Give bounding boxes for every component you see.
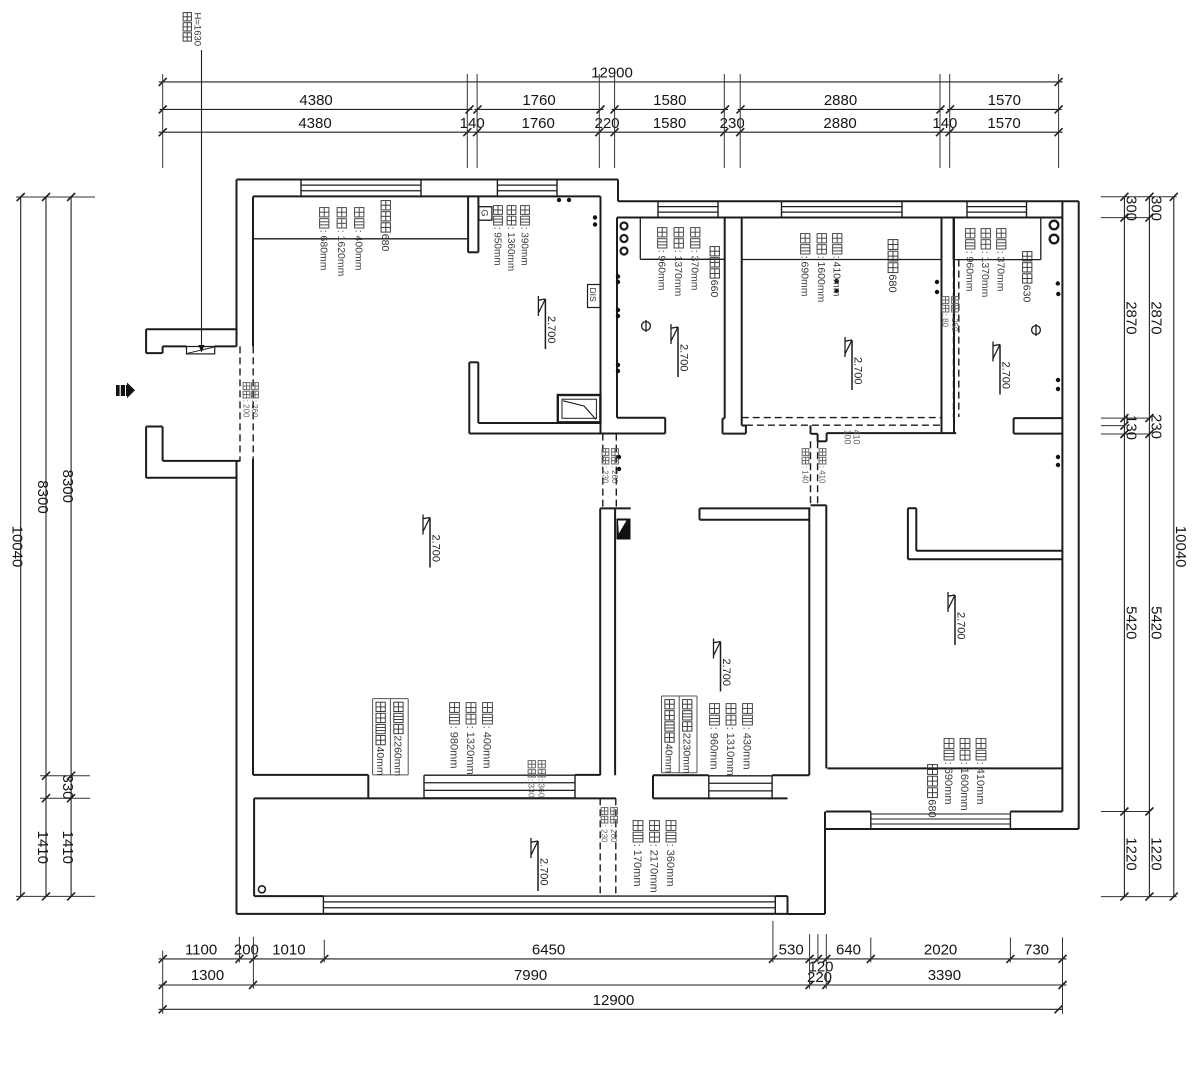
svg-text:2870: 2870 bbox=[1123, 301, 1140, 334]
svg-text:2.700: 2.700 bbox=[538, 858, 550, 886]
svg-text:: 1310mm: : 1310mm bbox=[724, 727, 736, 776]
svg-text:2.700: 2.700 bbox=[430, 535, 442, 563]
svg-text:3390: 3390 bbox=[928, 967, 961, 984]
svg-text:12900: 12900 bbox=[593, 992, 635, 1009]
svg-text:2.700: 2.700 bbox=[852, 357, 864, 385]
svg-text:1760: 1760 bbox=[522, 92, 555, 109]
svg-text:: 960mm: : 960mm bbox=[655, 250, 667, 291]
svg-text:: 1370mm: : 1370mm bbox=[672, 250, 684, 297]
svg-text:2.700: 2.700 bbox=[720, 659, 732, 687]
svg-text:: 980mm: : 980mm bbox=[447, 726, 459, 769]
svg-text:680: 680 bbox=[925, 799, 937, 817]
svg-text:40mm: 40mm bbox=[663, 744, 675, 773]
svg-text:5420: 5420 bbox=[1148, 606, 1165, 639]
svg-text:680: 680 bbox=[379, 234, 391, 252]
svg-text:: 410: : 410 bbox=[818, 466, 827, 484]
svg-text:: 1600mm: : 1600mm bbox=[815, 256, 827, 303]
svg-text:2880: 2880 bbox=[824, 92, 857, 109]
svg-text:220: 220 bbox=[807, 969, 832, 986]
svg-text:1300: 1300 bbox=[191, 967, 224, 984]
svg-text:: 410mm: : 410mm bbox=[830, 256, 842, 297]
svg-text:: 690mm: : 690mm bbox=[798, 256, 810, 297]
svg-text:100: 100 bbox=[843, 430, 853, 445]
svg-text:1570: 1570 bbox=[988, 92, 1021, 109]
svg-text:1580: 1580 bbox=[653, 115, 686, 132]
svg-text:410: 410 bbox=[852, 430, 862, 445]
svg-text:: 680mm: : 680mm bbox=[317, 230, 329, 271]
svg-text:1100: 1100 bbox=[185, 942, 217, 959]
svg-text:: 410mm: : 410mm bbox=[974, 762, 986, 805]
svg-text:7990: 7990 bbox=[514, 967, 547, 984]
svg-text:: 400mm: : 400mm bbox=[480, 726, 492, 769]
svg-text:8300: 8300 bbox=[59, 470, 76, 503]
svg-text:1570: 1570 bbox=[987, 115, 1020, 132]
svg-text:: 400mm: : 400mm bbox=[352, 230, 364, 271]
svg-text:1010: 1010 bbox=[272, 942, 305, 959]
svg-text:: 80: : 80 bbox=[941, 314, 950, 328]
svg-text:: 1600mm: : 1600mm bbox=[958, 762, 970, 811]
svg-text:2.700: 2.700 bbox=[955, 612, 967, 640]
svg-text:2870: 2870 bbox=[1148, 301, 1165, 334]
svg-text:2260mm: 2260mm bbox=[392, 735, 404, 776]
svg-text:DIS: DIS bbox=[588, 288, 598, 303]
svg-text:2230mm: 2230mm bbox=[680, 733, 692, 774]
svg-text:300: 300 bbox=[1148, 196, 1165, 221]
svg-text:730: 730 bbox=[1024, 942, 1049, 959]
svg-text:: 390mm: : 390mm bbox=[518, 227, 529, 266]
svg-text:660: 660 bbox=[708, 280, 720, 298]
svg-text:: 360mm: : 360mm bbox=[664, 844, 676, 887]
svg-text:: 360: : 360 bbox=[537, 779, 547, 798]
svg-text:: 370mm: : 370mm bbox=[994, 251, 1006, 292]
svg-text:: 330: : 330 bbox=[527, 779, 537, 798]
svg-text:230: 230 bbox=[1148, 414, 1165, 439]
svg-text:680: 680 bbox=[886, 274, 898, 292]
svg-text:: 2170mm: : 2170mm bbox=[647, 844, 659, 893]
svg-text:: 200: : 200 bbox=[242, 400, 251, 418]
svg-text:330: 330 bbox=[59, 775, 76, 800]
svg-text:200: 200 bbox=[234, 942, 259, 959]
svg-text:220: 220 bbox=[594, 115, 619, 132]
svg-text:130: 130 bbox=[1123, 415, 1140, 440]
svg-text:: 1360mm: : 1360mm bbox=[505, 227, 516, 271]
svg-text:4380: 4380 bbox=[298, 115, 331, 132]
svg-text:1220: 1220 bbox=[1148, 837, 1165, 870]
svg-text:2880: 2880 bbox=[823, 115, 856, 132]
svg-text:: 260: : 260 bbox=[609, 825, 618, 843]
svg-text:G: G bbox=[480, 210, 490, 217]
svg-text:: 140: : 140 bbox=[801, 466, 810, 484]
svg-text:5420: 5420 bbox=[1123, 606, 1140, 639]
svg-text:6450: 6450 bbox=[532, 942, 565, 959]
svg-text:H=1630: H=1630 bbox=[192, 13, 203, 47]
svg-text:1760: 1760 bbox=[522, 115, 555, 132]
svg-text:140: 140 bbox=[932, 115, 957, 132]
svg-text:530: 530 bbox=[779, 942, 804, 959]
svg-text:2020: 2020 bbox=[924, 942, 957, 959]
svg-text:630: 630 bbox=[1020, 285, 1032, 303]
svg-text:: 170mm: : 170mm bbox=[631, 844, 643, 887]
svg-text:2.700: 2.700 bbox=[678, 344, 690, 372]
svg-text:: 250: : 250 bbox=[950, 314, 959, 332]
svg-text:: 230: : 230 bbox=[600, 825, 609, 843]
svg-text:: 960mm: : 960mm bbox=[963, 251, 975, 292]
svg-text:: 690mm: : 690mm bbox=[942, 762, 954, 805]
svg-text:1410: 1410 bbox=[59, 831, 76, 864]
svg-text:300: 300 bbox=[1123, 196, 1140, 221]
svg-text:: 370mm: : 370mm bbox=[688, 250, 700, 291]
svg-text:: 950mm: : 950mm bbox=[491, 227, 502, 266]
svg-text:: 1370mm: : 1370mm bbox=[979, 251, 991, 298]
svg-text:4380: 4380 bbox=[299, 92, 332, 109]
svg-text:2.700: 2.700 bbox=[1000, 362, 1012, 390]
svg-text:640: 640 bbox=[836, 942, 861, 959]
svg-text:: 1620mm: : 1620mm bbox=[335, 230, 347, 277]
svg-text:10040: 10040 bbox=[1172, 526, 1189, 568]
svg-text:: 430mm: : 430mm bbox=[740, 727, 752, 770]
svg-text:: 960mm: : 960mm bbox=[707, 727, 719, 770]
svg-text:1580: 1580 bbox=[653, 92, 686, 109]
svg-text:10040: 10040 bbox=[9, 526, 26, 568]
svg-text:1410: 1410 bbox=[34, 831, 51, 864]
svg-text:12900: 12900 bbox=[591, 65, 633, 82]
svg-text:8300: 8300 bbox=[34, 480, 51, 513]
svg-text:2.700: 2.700 bbox=[545, 316, 557, 344]
svg-text:230: 230 bbox=[720, 115, 745, 132]
svg-text:: 230: : 230 bbox=[601, 466, 610, 484]
svg-text:40mm: 40mm bbox=[374, 747, 386, 776]
svg-text:1220: 1220 bbox=[1123, 837, 1140, 870]
svg-text:: 260: : 260 bbox=[250, 400, 259, 418]
svg-text:: 1320mm: : 1320mm bbox=[464, 726, 476, 775]
svg-text:140: 140 bbox=[460, 115, 485, 132]
